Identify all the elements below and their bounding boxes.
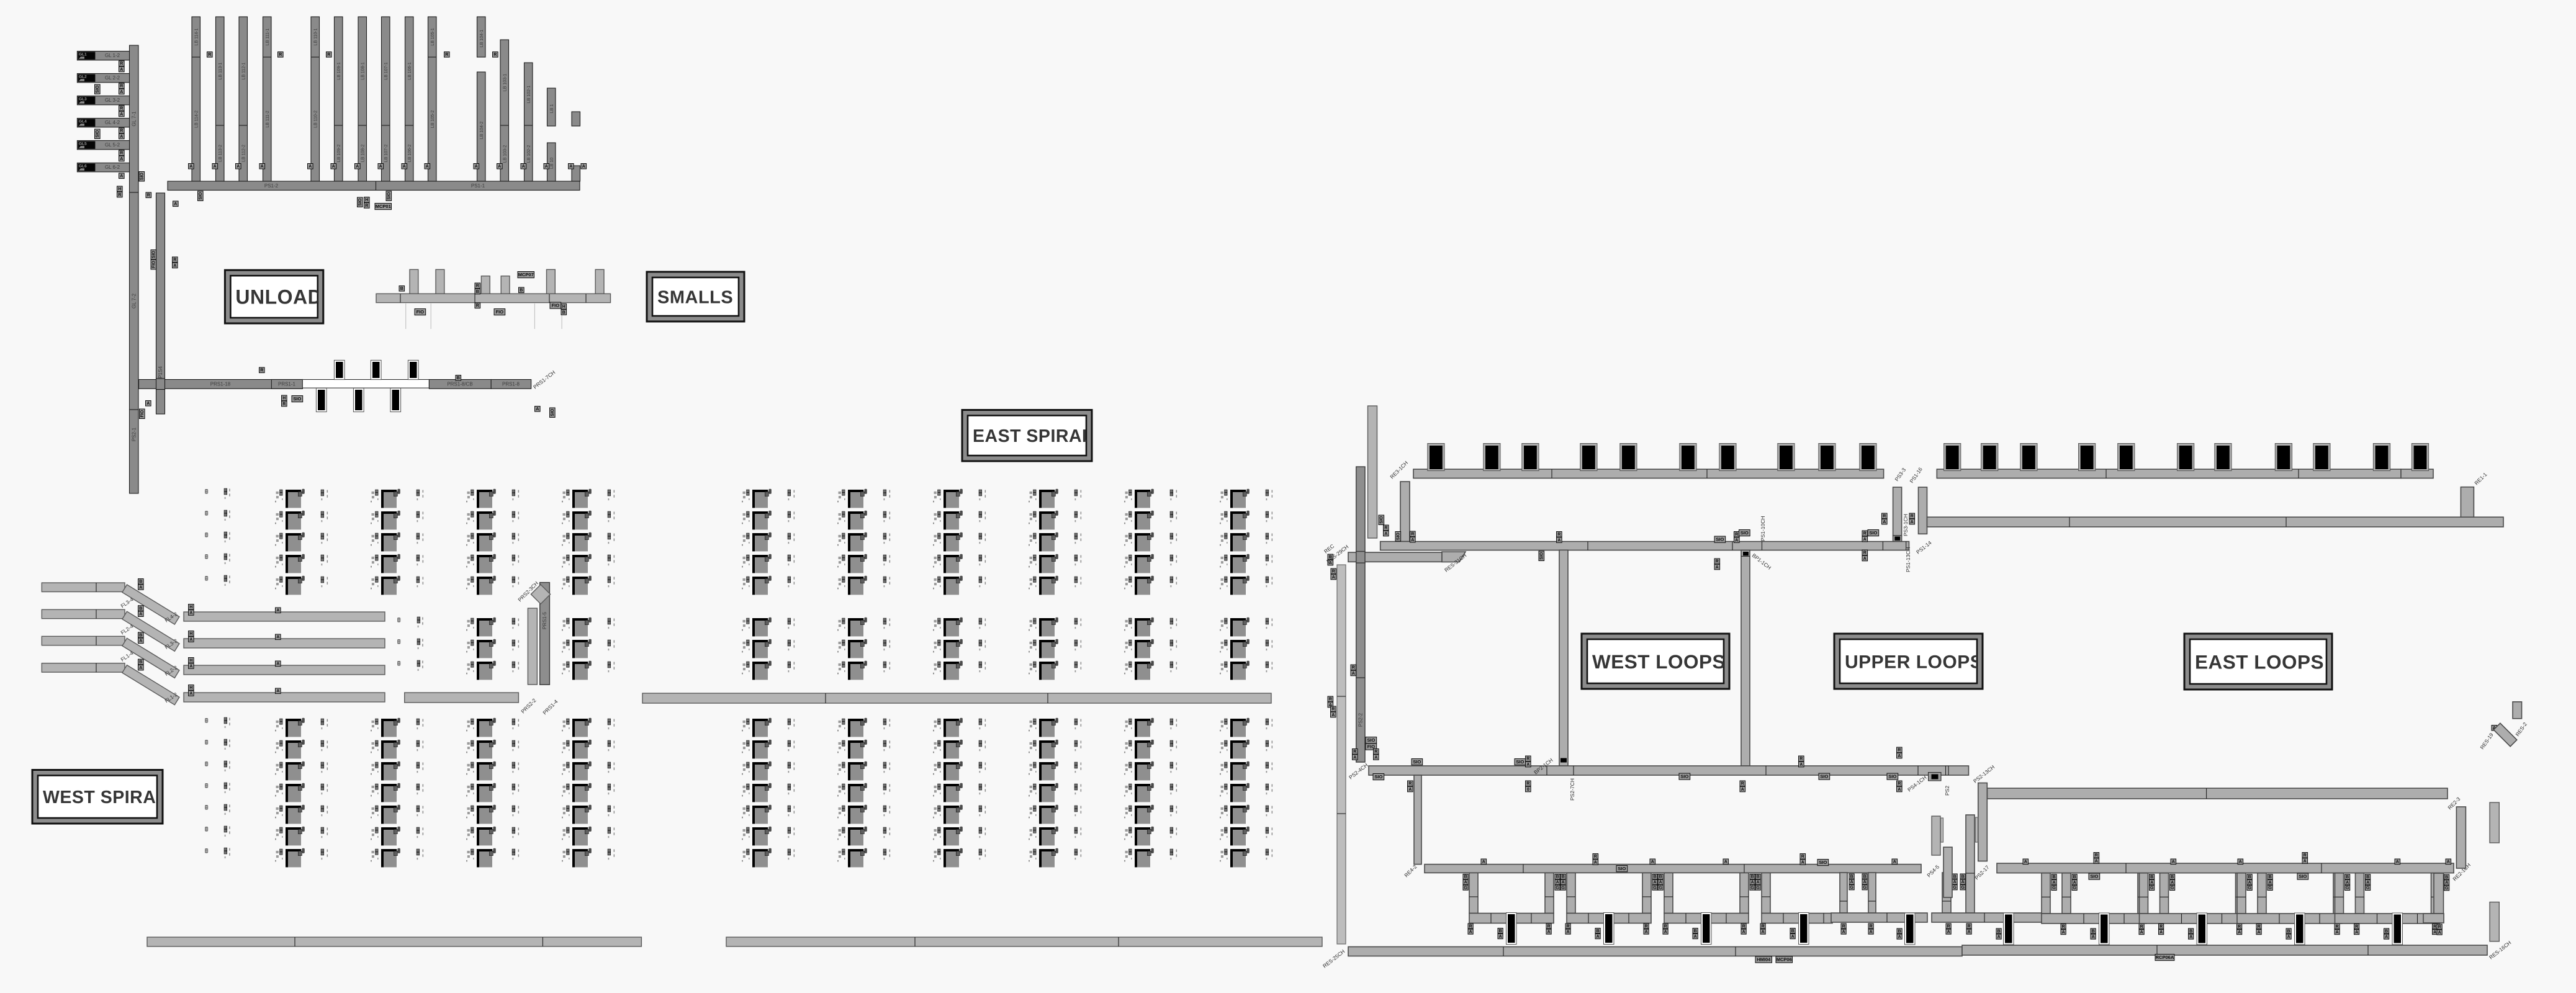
svg-text:GL2: GL2 xyxy=(79,75,87,79)
svg-text:A: A xyxy=(1654,881,1657,885)
svg-text:MCP07: MCP07 xyxy=(518,272,534,277)
svg-text:A: A xyxy=(582,164,585,169)
svg-text:R: R xyxy=(1332,570,1335,574)
svg-text:G: G xyxy=(1556,886,1559,890)
svg-text:A: A xyxy=(120,174,123,179)
svg-text:SIO: SIO xyxy=(2299,874,2307,879)
svg-text:G: G xyxy=(1961,886,1965,890)
svg-text:GL 4-2: GL 4-2 xyxy=(105,120,120,125)
svg-text:H: H xyxy=(189,605,192,609)
svg-text:EAST SPIRAL: EAST SPIRAL xyxy=(973,426,1093,446)
svg-text:WEST LOOPS: WEST LOOPS xyxy=(1592,650,1726,673)
svg-text:A: A xyxy=(2355,930,2358,935)
svg-text:R: R xyxy=(2304,853,2307,858)
svg-text:A: A xyxy=(1562,881,1565,885)
svg-text:A: A xyxy=(1482,860,1485,865)
svg-text:SIO: SIO xyxy=(293,396,301,402)
svg-text:SIO: SIO xyxy=(1516,759,1524,765)
svg-text:PS2-1: PS2-1 xyxy=(131,427,137,441)
svg-text:LB 104-2: LB 104-2 xyxy=(480,122,484,140)
svg-text:A: A xyxy=(276,690,279,694)
svg-text:A: A xyxy=(2287,935,2290,939)
svg-text:G: G xyxy=(1756,886,1760,890)
svg-text:SIO: SIO xyxy=(1380,516,1384,524)
svg-text:A: A xyxy=(2433,930,2436,935)
svg-text:LB 113-1: LB 113-1 xyxy=(218,62,223,79)
svg-text:A: A xyxy=(332,164,335,169)
svg-text:GL 2-2: GL 2-2 xyxy=(105,75,120,81)
svg-text:SIO: SIO xyxy=(1888,774,1896,780)
svg-text:A: A xyxy=(1863,557,1867,561)
svg-text:A: A xyxy=(2366,881,2369,885)
svg-text:A: A xyxy=(189,691,192,696)
svg-text:SIO: SIO xyxy=(199,192,203,200)
svg-text:A: A xyxy=(1547,930,1551,934)
svg-text:A: A xyxy=(2238,930,2241,935)
svg-text:A: A xyxy=(403,164,406,169)
svg-text:A: A xyxy=(2024,860,2027,865)
svg-text:R: R xyxy=(2095,853,2098,858)
svg-text:LB 107-2: LB 107-2 xyxy=(384,145,389,163)
svg-text:A: A xyxy=(2171,881,2174,885)
svg-text:R: R xyxy=(1898,748,1901,753)
svg-text:G: G xyxy=(1850,886,1853,890)
svg-text:B: B xyxy=(476,290,479,294)
svg-text:A: A xyxy=(1352,672,1355,676)
svg-text:A: A xyxy=(120,112,123,117)
svg-text:A: A xyxy=(545,164,548,169)
svg-text:FIO: FIO xyxy=(417,309,425,315)
svg-text:B: B xyxy=(2366,875,2369,879)
svg-text:LB 109-1: LB 109-1 xyxy=(337,62,341,80)
svg-text:LB 103-2: LB 103-2 xyxy=(503,145,508,163)
svg-text:R: R xyxy=(1411,532,1414,537)
svg-text:B: B xyxy=(520,289,523,293)
svg-text:LB 108-2: LB 108-2 xyxy=(361,145,366,163)
svg-text:A: A xyxy=(1353,755,1356,760)
svg-text:R: R xyxy=(1735,532,1738,537)
svg-text:LB 105-1: LB 105-1 xyxy=(431,28,435,46)
svg-text:A: A xyxy=(1645,930,1648,934)
svg-text:A: A xyxy=(1757,881,1760,885)
svg-text:R: R xyxy=(2433,925,2436,929)
svg-text:LB 108-1: LB 108-1 xyxy=(361,62,366,80)
svg-text:A: A xyxy=(236,164,240,169)
svg-text:LB 111-2: LB 111-2 xyxy=(266,110,270,127)
svg-text:A: A xyxy=(1997,935,2001,939)
svg-text:A: A xyxy=(1724,860,1727,865)
svg-text:R: R xyxy=(1968,924,1971,928)
svg-text:A: A xyxy=(1464,881,1467,885)
svg-text:A: A xyxy=(276,636,279,640)
svg-text:PS3-1CH: PS3-1CH xyxy=(1903,514,1909,536)
svg-text:R: R xyxy=(1469,924,1472,928)
svg-text:GL6: GL6 xyxy=(79,164,87,169)
svg-text:R: R xyxy=(445,53,448,57)
svg-text:SIO: SIO xyxy=(152,251,156,259)
svg-text:A: A xyxy=(189,637,192,642)
svg-text:SIO: SIO xyxy=(551,408,555,416)
svg-text:B: B xyxy=(2287,929,2290,933)
svg-text:G: G xyxy=(2445,886,2449,891)
svg-text:A: A xyxy=(1556,881,1559,885)
svg-text:UNLOAD: UNLOAD xyxy=(235,286,322,308)
svg-text:GL 6-2: GL 6-2 xyxy=(105,164,120,170)
svg-text:SIO: SIO xyxy=(1820,774,1828,780)
svg-text:A: A xyxy=(2095,859,2098,863)
svg-text:A: A xyxy=(475,164,478,169)
svg-text:SIO: SIO xyxy=(358,198,363,206)
svg-text:PRS1-1: PRS1-1 xyxy=(278,382,296,387)
svg-text:A: A xyxy=(1659,881,1662,885)
svg-text:G: G xyxy=(1750,886,1754,890)
svg-text:LB 109-2: LB 109-2 xyxy=(337,145,341,163)
svg-text:PRS1-5: PRS1-5 xyxy=(542,611,547,629)
svg-text:A: A xyxy=(1968,930,1971,934)
svg-text:A: A xyxy=(2150,881,2153,885)
svg-text:SIO: SIO xyxy=(96,130,100,138)
svg-text:A: A xyxy=(536,407,539,411)
svg-text:R: R xyxy=(1898,782,1901,786)
svg-text:R: R xyxy=(1374,750,1377,754)
svg-text:PRS1-8/CB: PRS1-8/CB xyxy=(447,382,472,387)
svg-text:B: B xyxy=(2150,875,2153,879)
svg-text:A: A xyxy=(2172,860,2175,865)
svg-text:PS1-10CH: PS1-10CH xyxy=(1760,516,1766,541)
svg-text:G: G xyxy=(1653,886,1657,890)
svg-text:GL 3-2: GL 3-2 xyxy=(105,97,120,103)
svg-text:A: A xyxy=(214,164,217,169)
svg-text:R: R xyxy=(120,84,123,89)
svg-text:A: A xyxy=(2346,881,2349,885)
svg-text:B: B xyxy=(1562,875,1565,879)
svg-text:A: A xyxy=(1961,880,1965,884)
svg-text:G: G xyxy=(1659,886,1662,890)
svg-text:G: G xyxy=(2268,886,2272,891)
svg-text:GL 7-2: GL 7-2 xyxy=(131,293,137,308)
svg-text:A: A xyxy=(1331,713,1335,717)
svg-text:SIO: SIO xyxy=(1716,537,1724,542)
svg-text:G: G xyxy=(2073,886,2076,891)
svg-text:B: B xyxy=(139,580,142,584)
svg-text:B: B xyxy=(2385,929,2388,933)
svg-text:B: B xyxy=(457,376,460,380)
svg-text:FIO: FIO xyxy=(496,309,504,315)
svg-text:0: 0 xyxy=(1527,788,1529,792)
svg-text:R: R xyxy=(1526,757,1529,762)
svg-text:A: A xyxy=(1911,520,1914,524)
svg-text:SIO: SIO xyxy=(387,192,392,200)
svg-text:SIO: SIO xyxy=(1367,737,1375,743)
svg-text:A: A xyxy=(1947,930,1950,934)
svg-text:A: A xyxy=(1801,860,1804,865)
svg-text:B: B xyxy=(139,606,142,611)
svg-text:R: R xyxy=(1870,924,1873,928)
svg-text:B: B xyxy=(1850,874,1853,879)
svg-text:R: R xyxy=(1664,924,1667,928)
svg-text:A: A xyxy=(1408,788,1412,792)
svg-text:A: A xyxy=(120,157,123,161)
svg-text:A: A xyxy=(2258,930,2261,935)
svg-text:A: A xyxy=(139,613,142,617)
svg-text:LB 102-1: LB 102-1 xyxy=(527,86,531,104)
svg-text:A: A xyxy=(1870,930,1873,934)
svg-text:B: B xyxy=(1596,929,1600,933)
svg-text:LB 1: LB 1 xyxy=(550,104,554,114)
svg-text:R: R xyxy=(365,204,368,208)
svg-text:B: B xyxy=(400,287,403,291)
svg-text:R: R xyxy=(1384,526,1387,531)
svg-text:R: R xyxy=(1353,750,1356,754)
svg-text:R: R xyxy=(147,194,150,198)
svg-text:A: A xyxy=(1694,935,1697,939)
svg-text:A: A xyxy=(2304,859,2307,863)
svg-text:A: A xyxy=(522,164,525,169)
svg-text:PS1-2: PS1-2 xyxy=(264,183,279,189)
svg-text:A: A xyxy=(2053,881,2056,885)
svg-text:R: R xyxy=(1863,551,1867,555)
svg-text:B: B xyxy=(2092,929,2095,933)
svg-text:A: A xyxy=(2092,935,2095,939)
svg-text:H: H xyxy=(118,187,121,192)
svg-text:R: R xyxy=(120,107,123,111)
svg-text:SIO: SIO xyxy=(1413,759,1421,765)
svg-text:MCP01: MCP01 xyxy=(376,204,391,209)
svg-text:A: A xyxy=(120,68,123,72)
svg-text:A: A xyxy=(1526,763,1529,767)
svg-text:SIO: SIO xyxy=(140,173,145,181)
svg-text:B: B xyxy=(1961,874,1965,879)
svg-text:A: A xyxy=(2385,935,2388,939)
svg-text:R: R xyxy=(2258,925,2261,929)
svg-text:B: B xyxy=(1499,929,1502,933)
svg-text:A: A xyxy=(356,164,359,169)
svg-text:FIO: FIO xyxy=(552,303,560,308)
svg-text:A: A xyxy=(1799,763,1803,767)
svg-text:R: R xyxy=(1741,782,1744,786)
svg-text:A: A xyxy=(1664,930,1667,934)
svg-text:G: G xyxy=(2171,886,2174,891)
svg-text:LB 102-2: LB 102-2 xyxy=(527,145,531,163)
svg-text:B: B xyxy=(1464,875,1467,879)
svg-text:A: A xyxy=(569,164,572,169)
svg-text:G: G xyxy=(1464,886,1467,890)
svg-text:A: A xyxy=(1863,537,1867,542)
svg-text:B: B xyxy=(1556,875,1559,879)
svg-text:A: A xyxy=(2269,881,2272,885)
svg-text:B: B xyxy=(1898,929,1901,933)
svg-text:LB 114-1: LB 114-1 xyxy=(195,28,199,45)
svg-text:A: A xyxy=(426,164,429,169)
svg-text:A: A xyxy=(1842,930,1845,934)
svg-text:LB 106-1: LB 106-1 xyxy=(408,62,412,80)
svg-text:SIO: SIO xyxy=(96,85,100,93)
svg-text:R: R xyxy=(208,53,211,57)
svg-text:B: B xyxy=(1791,929,1795,933)
svg-text:A: A xyxy=(189,664,192,668)
svg-text:A: A xyxy=(174,202,177,207)
svg-text:H: H xyxy=(365,198,368,202)
svg-text:A: A xyxy=(261,164,264,169)
svg-text:A: A xyxy=(1716,565,1719,570)
svg-text:GL 5-2: GL 5-2 xyxy=(105,142,120,148)
svg-text:R: R xyxy=(260,369,263,373)
svg-text:R: R xyxy=(1547,924,1551,928)
svg-text:LB 106-2: LB 106-2 xyxy=(408,145,412,163)
svg-text:B: B xyxy=(1694,929,1697,933)
svg-text:A: A xyxy=(1411,538,1414,542)
svg-text:GL1: GL1 xyxy=(79,53,87,57)
svg-text:B: B xyxy=(1757,875,1760,879)
svg-text:R: R xyxy=(2238,925,2241,929)
svg-text:LB 105-2: LB 105-2 xyxy=(431,110,435,128)
svg-text:R: R xyxy=(1645,924,1648,928)
svg-text:GL3: GL3 xyxy=(79,97,87,102)
svg-text:A: A xyxy=(139,666,142,670)
svg-text:B: B xyxy=(2171,875,2174,879)
svg-text:A: A xyxy=(2336,930,2339,935)
svg-text:R: R xyxy=(120,151,123,156)
svg-text:R: R xyxy=(2062,925,2065,929)
svg-text:H: H xyxy=(189,686,192,690)
svg-text:SIO: SIO xyxy=(1741,530,1749,536)
svg-text:B: B xyxy=(139,660,142,665)
svg-text:SMALLS: SMALLS xyxy=(657,287,733,307)
svg-text:R: R xyxy=(1594,855,1597,859)
svg-text:A: A xyxy=(1499,935,1502,939)
svg-text:A: A xyxy=(2140,930,2143,935)
svg-text:R: R xyxy=(118,193,121,197)
svg-text:PRS1-8: PRS1-8 xyxy=(502,382,520,387)
svg-text:A: A xyxy=(146,402,150,406)
svg-text:PRS1-18: PRS1-18 xyxy=(210,382,231,387)
svg-text:A: A xyxy=(1953,880,1957,884)
svg-text:LB 111-1: LB 111-1 xyxy=(266,29,270,45)
svg-text:R: R xyxy=(120,129,123,133)
svg-text:R: R xyxy=(1801,855,1804,859)
svg-text:LB 114-2: LB 114-2 xyxy=(195,110,199,128)
svg-text:R: R xyxy=(1742,924,1745,928)
svg-text:G: G xyxy=(2346,886,2349,891)
svg-text:SIO: SIO xyxy=(1618,866,1626,871)
svg-text:A: A xyxy=(379,164,382,169)
svg-text:G: G xyxy=(2248,886,2251,891)
svg-text:R: R xyxy=(173,258,176,263)
svg-text:R: R xyxy=(1557,532,1560,537)
svg-text:A: A xyxy=(189,164,192,169)
svg-text:GL4: GL4 xyxy=(79,120,87,124)
svg-text:R: R xyxy=(2438,925,2441,929)
svg-text:A: A xyxy=(2159,930,2163,935)
svg-text:A: A xyxy=(1469,930,1472,934)
svg-text:B: B xyxy=(2445,875,2448,879)
svg-text:GL 1-2: GL 1-2 xyxy=(105,53,120,58)
svg-text:GL 7-1: GL 7-1 xyxy=(131,111,137,127)
svg-text:A: A xyxy=(173,264,176,268)
svg-text:R: R xyxy=(1842,924,1845,928)
svg-text:A: A xyxy=(2062,930,2065,935)
svg-text:R: R xyxy=(1329,698,1332,702)
svg-text:G: G xyxy=(2052,886,2056,891)
svg-text:A: A xyxy=(2396,860,2399,865)
svg-text:A: A xyxy=(2073,881,2076,885)
svg-text:R: R xyxy=(1526,782,1529,786)
svg-text:R: R xyxy=(1911,514,1914,519)
svg-text:R: R xyxy=(1947,924,1950,928)
svg-text:H: H xyxy=(189,632,192,636)
svg-text:LB 112-2: LB 112-2 xyxy=(242,145,246,162)
svg-text:B: B xyxy=(139,633,142,637)
svg-text:R: R xyxy=(279,53,282,57)
svg-text:H: H xyxy=(189,658,192,663)
svg-text:A: A xyxy=(1332,575,1335,580)
svg-text:R: R xyxy=(1799,757,1803,762)
svg-text:A: A xyxy=(276,662,279,667)
svg-text:B: B xyxy=(2189,929,2192,933)
svg-text:G: G xyxy=(1953,886,1957,890)
svg-text:A: A xyxy=(1863,880,1867,884)
svg-text:SIO: SIO xyxy=(1397,532,1401,541)
svg-text:A: A xyxy=(1596,935,1600,939)
svg-text:EAST LOOPS: EAST LOOPS xyxy=(2195,650,2324,673)
svg-text:H: H xyxy=(282,397,286,401)
svg-text:A: A xyxy=(1557,538,1560,542)
svg-text:MCP06: MCP06 xyxy=(1777,957,1792,963)
svg-text:A: A xyxy=(308,164,312,169)
svg-text:B: B xyxy=(1953,874,1957,879)
svg-text:GL5: GL5 xyxy=(79,142,87,146)
svg-text:A: A xyxy=(1594,860,1597,865)
svg-text:R: R xyxy=(327,53,330,57)
svg-text:G: G xyxy=(2150,886,2154,891)
svg-text:PS2-7CH: PS2-7CH xyxy=(1569,778,1575,801)
svg-text:SIO: SIO xyxy=(1374,774,1382,780)
svg-text:PS1-13CH: PS1-13CH xyxy=(1905,547,1911,572)
svg-text:UPPER LOOPS: UPPER LOOPS xyxy=(1845,652,1983,672)
svg-text:PS2-2: PS2-2 xyxy=(1358,712,1364,727)
svg-text:A: A xyxy=(139,639,142,644)
svg-text:A: A xyxy=(1651,860,1654,865)
svg-text:B: B xyxy=(562,310,565,315)
svg-text:A: A xyxy=(1742,930,1745,934)
svg-text:A: A xyxy=(1762,930,1765,934)
svg-text:PS2: PS2 xyxy=(1944,786,1950,796)
svg-text:SIO: SIO xyxy=(2090,874,2098,879)
svg-text:A: A xyxy=(139,585,142,590)
svg-text:FIO: FIO xyxy=(152,261,156,268)
svg-text:LB 107-1: LB 107-1 xyxy=(384,62,389,80)
svg-text:WEST SPIRAL: WEST SPIRAL xyxy=(43,788,167,807)
svg-text:A: A xyxy=(1898,935,1901,939)
svg-text:R: R xyxy=(1883,514,1886,519)
svg-text:HMI04: HMI04 xyxy=(1757,957,1771,963)
svg-text:R: R xyxy=(1716,560,1719,564)
svg-text:B: B xyxy=(1997,929,2001,933)
svg-text:A: A xyxy=(1735,538,1738,542)
svg-text:SIO: SIO xyxy=(1540,552,1544,560)
svg-text:RCP06A: RCP06A xyxy=(2156,955,2174,960)
svg-text:R: R xyxy=(1567,924,1570,928)
svg-text:A: A xyxy=(1791,935,1795,939)
svg-text:A: A xyxy=(2248,881,2251,885)
svg-text:SIO: SIO xyxy=(1680,774,1688,780)
svg-text:B: B xyxy=(1751,875,1754,879)
svg-text:SIO: SIO xyxy=(1869,530,1877,536)
svg-text:A: A xyxy=(2239,860,2242,865)
svg-text:B: B xyxy=(1863,874,1867,879)
svg-text:R: R xyxy=(2159,925,2163,929)
svg-text:R: R xyxy=(1352,666,1355,670)
